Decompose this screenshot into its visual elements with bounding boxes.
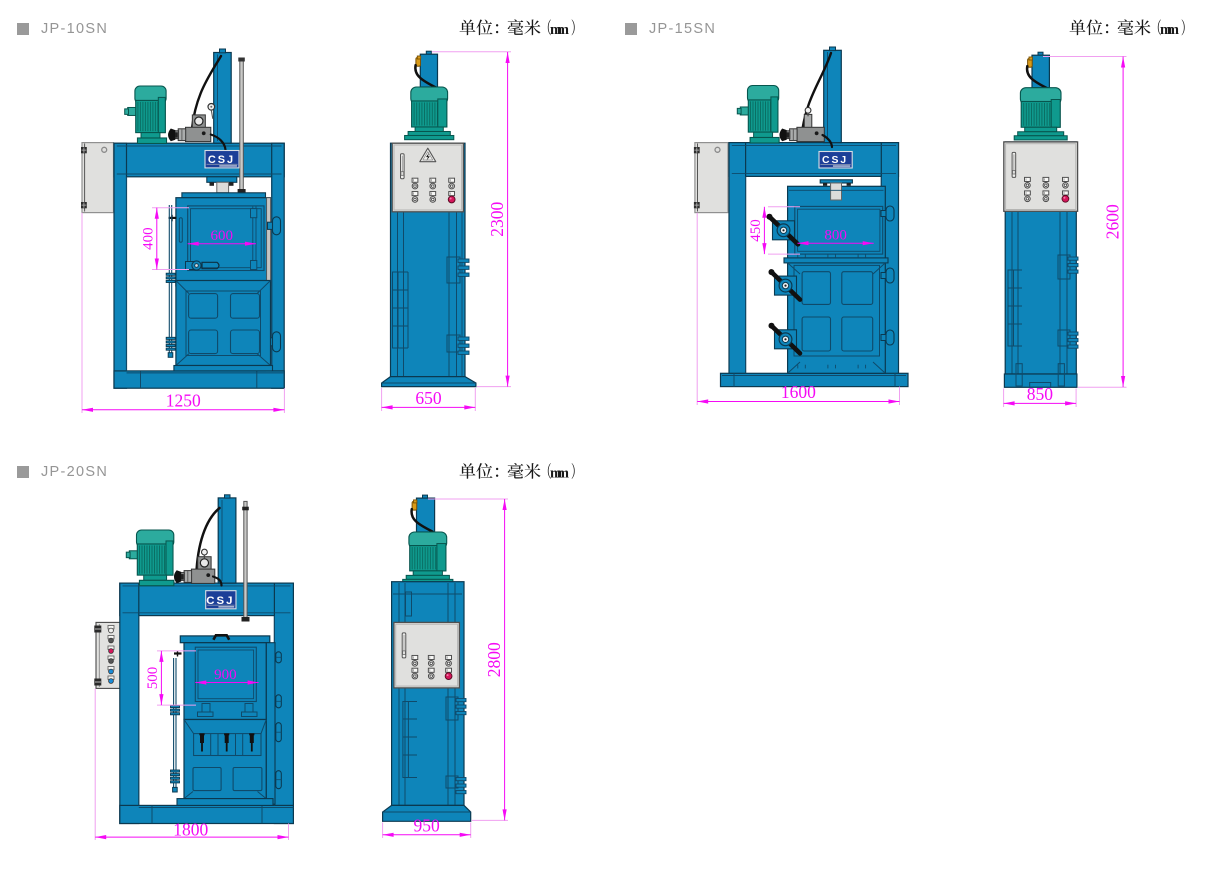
svg-text:2800: 2800 — [484, 642, 504, 677]
svg-text:850: 850 — [1027, 384, 1054, 404]
svg-text:450: 450 — [748, 219, 764, 242]
svg-text:1600: 1600 — [781, 382, 816, 402]
svg-text:1800: 1800 — [173, 819, 208, 839]
svg-text:2600: 2600 — [1103, 204, 1123, 239]
svg-text:650: 650 — [415, 388, 442, 408]
svg-text:1250: 1250 — [166, 390, 201, 410]
svg-text:500: 500 — [145, 667, 161, 690]
svg-text:600: 600 — [211, 228, 234, 244]
svg-text:400: 400 — [140, 227, 156, 250]
svg-text:950: 950 — [414, 815, 441, 835]
svg-text:800: 800 — [824, 228, 847, 244]
svg-text:900: 900 — [214, 667, 237, 683]
svg-text:2300: 2300 — [487, 202, 507, 237]
